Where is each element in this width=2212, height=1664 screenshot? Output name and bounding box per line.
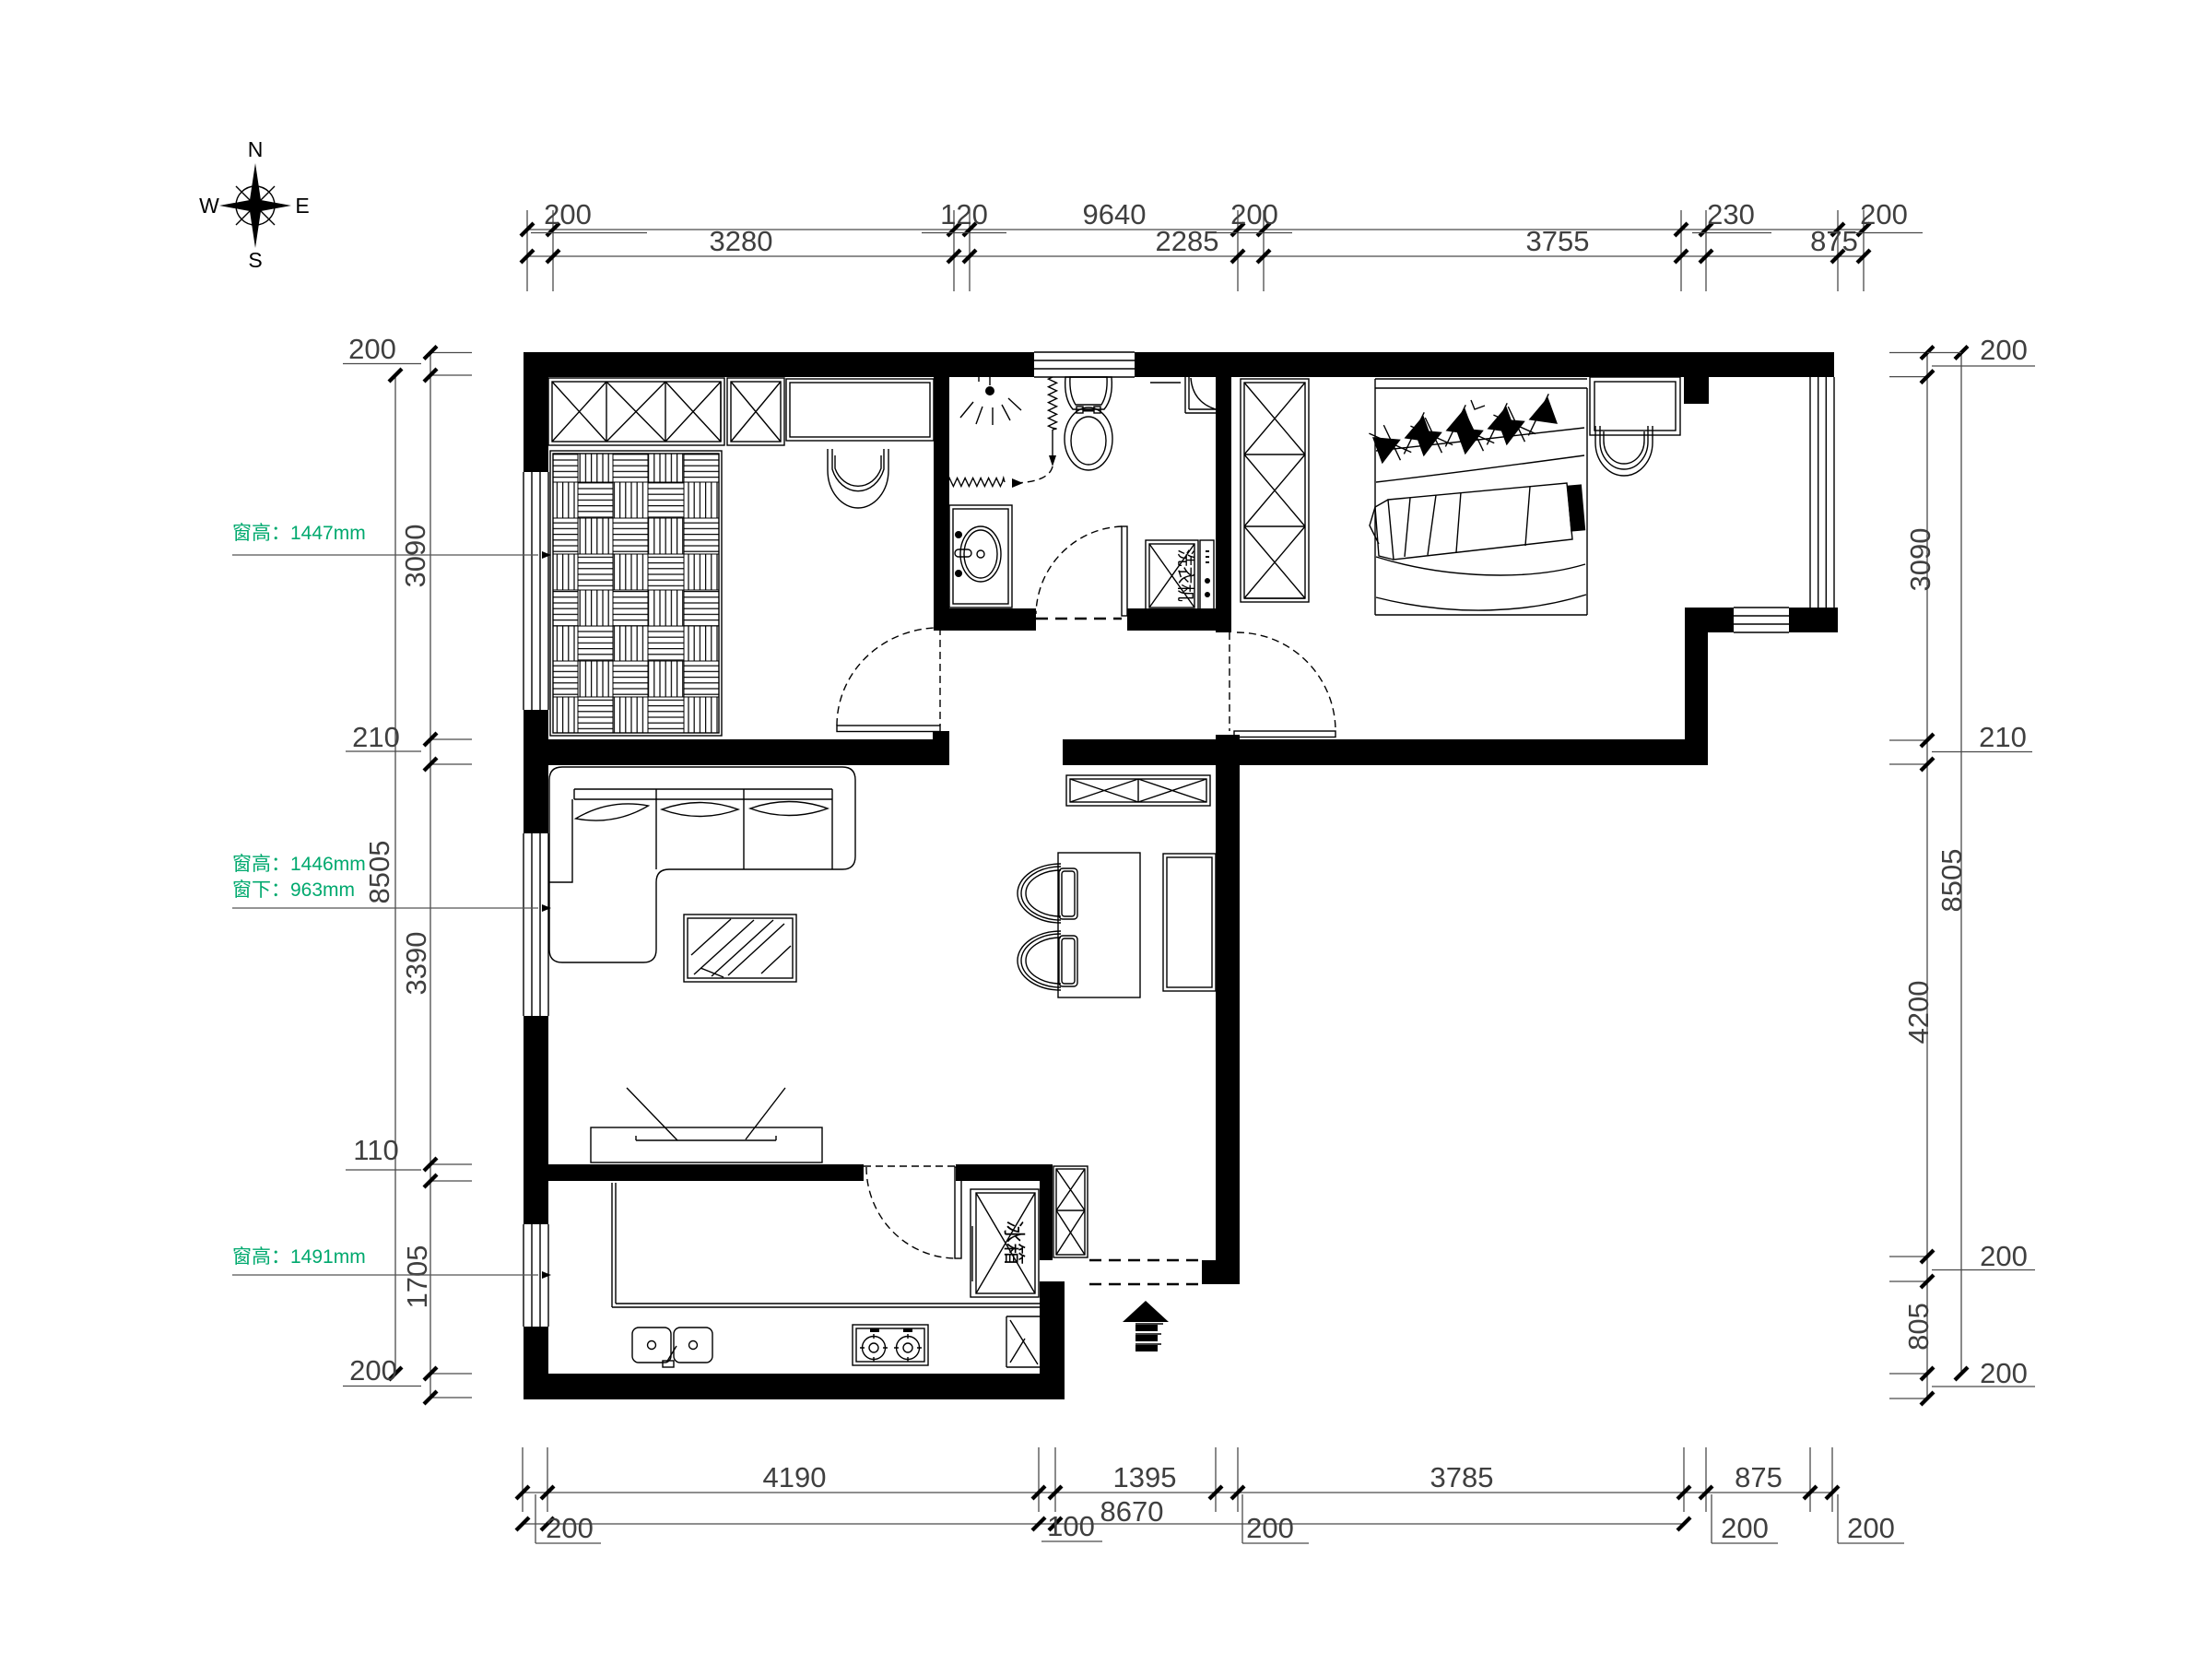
svg-text:200: 200 xyxy=(1246,1512,1294,1544)
svg-text:3755: 3755 xyxy=(1526,225,1590,257)
svg-text:200: 200 xyxy=(1847,1512,1895,1544)
svg-text:3090: 3090 xyxy=(1904,528,1936,592)
svg-text:洗衣机: 洗衣机 xyxy=(1175,549,1195,601)
svg-text:1395: 1395 xyxy=(1113,1461,1177,1493)
svg-text:200: 200 xyxy=(1980,334,2028,366)
svg-text:200: 200 xyxy=(1860,198,1908,230)
svg-text:210: 210 xyxy=(352,721,400,753)
svg-text:200: 200 xyxy=(544,198,592,230)
svg-text:200: 200 xyxy=(1230,198,1278,230)
svg-text:805: 805 xyxy=(1902,1303,1935,1351)
svg-text:8505: 8505 xyxy=(1935,849,1968,913)
svg-text:200: 200 xyxy=(349,1354,397,1387)
svg-text:100: 100 xyxy=(1047,1510,1095,1542)
svg-text:窗下：963mm: 窗下：963mm xyxy=(232,879,355,901)
svg-text:窗高：1446mm: 窗高：1446mm xyxy=(232,854,366,875)
svg-text:W: W xyxy=(199,194,219,218)
svg-text:3090: 3090 xyxy=(399,525,431,588)
svg-text:冰箱: 冰箱 xyxy=(1001,1221,1026,1265)
svg-text:3280: 3280 xyxy=(710,225,773,257)
svg-text:窗高：1447mm: 窗高：1447mm xyxy=(232,523,366,544)
svg-text:200: 200 xyxy=(1721,1512,1769,1544)
svg-text:4200: 4200 xyxy=(1902,981,1935,1044)
svg-text:1705: 1705 xyxy=(401,1245,433,1309)
svg-text:窗高：1491mm: 窗高：1491mm xyxy=(232,1246,366,1268)
svg-text:875: 875 xyxy=(1735,1461,1783,1493)
svg-text:3785: 3785 xyxy=(1430,1461,1494,1493)
svg-text:200: 200 xyxy=(546,1512,594,1544)
svg-text:200: 200 xyxy=(1980,1357,2028,1389)
svg-text:200: 200 xyxy=(348,333,396,365)
svg-text:200: 200 xyxy=(1980,1240,2028,1272)
svg-text:9640: 9640 xyxy=(1083,198,1147,230)
svg-text:110: 110 xyxy=(353,1134,398,1166)
svg-text:8670: 8670 xyxy=(1100,1495,1164,1528)
svg-text:8505: 8505 xyxy=(363,841,395,904)
svg-text:S: S xyxy=(248,248,262,272)
svg-text:3390: 3390 xyxy=(400,932,432,996)
svg-text:4190: 4190 xyxy=(763,1461,827,1493)
svg-text:N: N xyxy=(248,137,264,161)
svg-text:875: 875 xyxy=(1810,225,1858,257)
svg-text:120: 120 xyxy=(940,198,988,230)
svg-text:230: 230 xyxy=(1707,198,1755,230)
svg-text:210: 210 xyxy=(1979,721,2027,753)
svg-text:E: E xyxy=(295,194,309,218)
svg-text:2285: 2285 xyxy=(1156,225,1219,257)
